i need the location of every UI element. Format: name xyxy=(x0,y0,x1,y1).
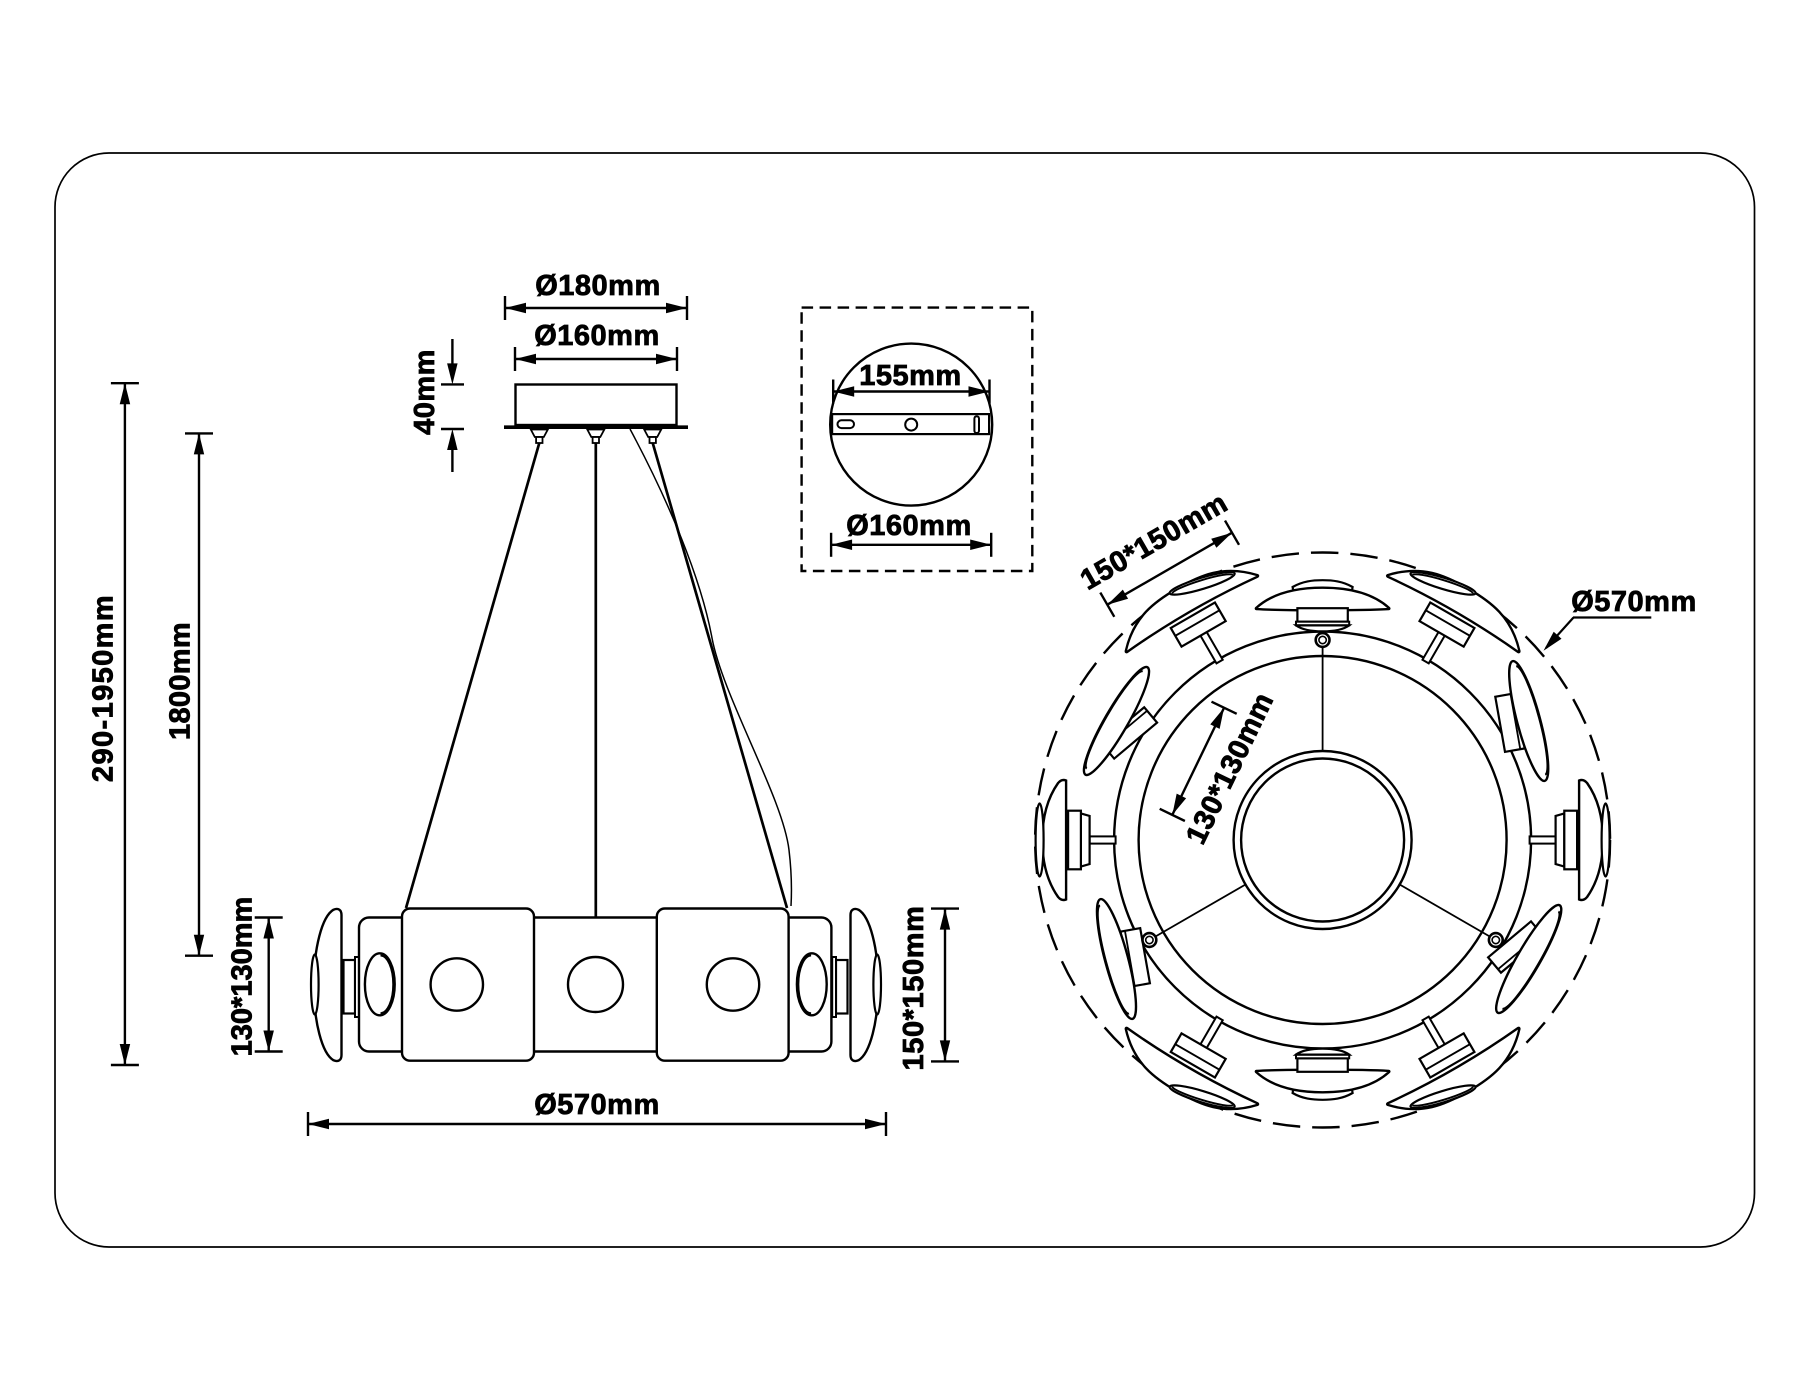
svg-text:Ø160mm: Ø160mm xyxy=(846,510,972,542)
svg-text:155mm: 155mm xyxy=(859,360,961,392)
svg-text:Ø180mm: Ø180mm xyxy=(535,270,661,302)
svg-text:130*130mm: 130*130mm xyxy=(227,897,259,1057)
svg-text:290-1950mm: 290-1950mm xyxy=(88,594,120,782)
svg-text:Ø160mm: Ø160mm xyxy=(534,320,660,352)
svg-text:1800mm: 1800mm xyxy=(165,622,197,740)
svg-text:40mm: 40mm xyxy=(409,349,441,435)
svg-text:Ø570mm: Ø570mm xyxy=(1571,586,1697,618)
svg-text:Ø570mm: Ø570mm xyxy=(534,1089,660,1121)
svg-text:150*150mm: 150*150mm xyxy=(898,905,930,1070)
